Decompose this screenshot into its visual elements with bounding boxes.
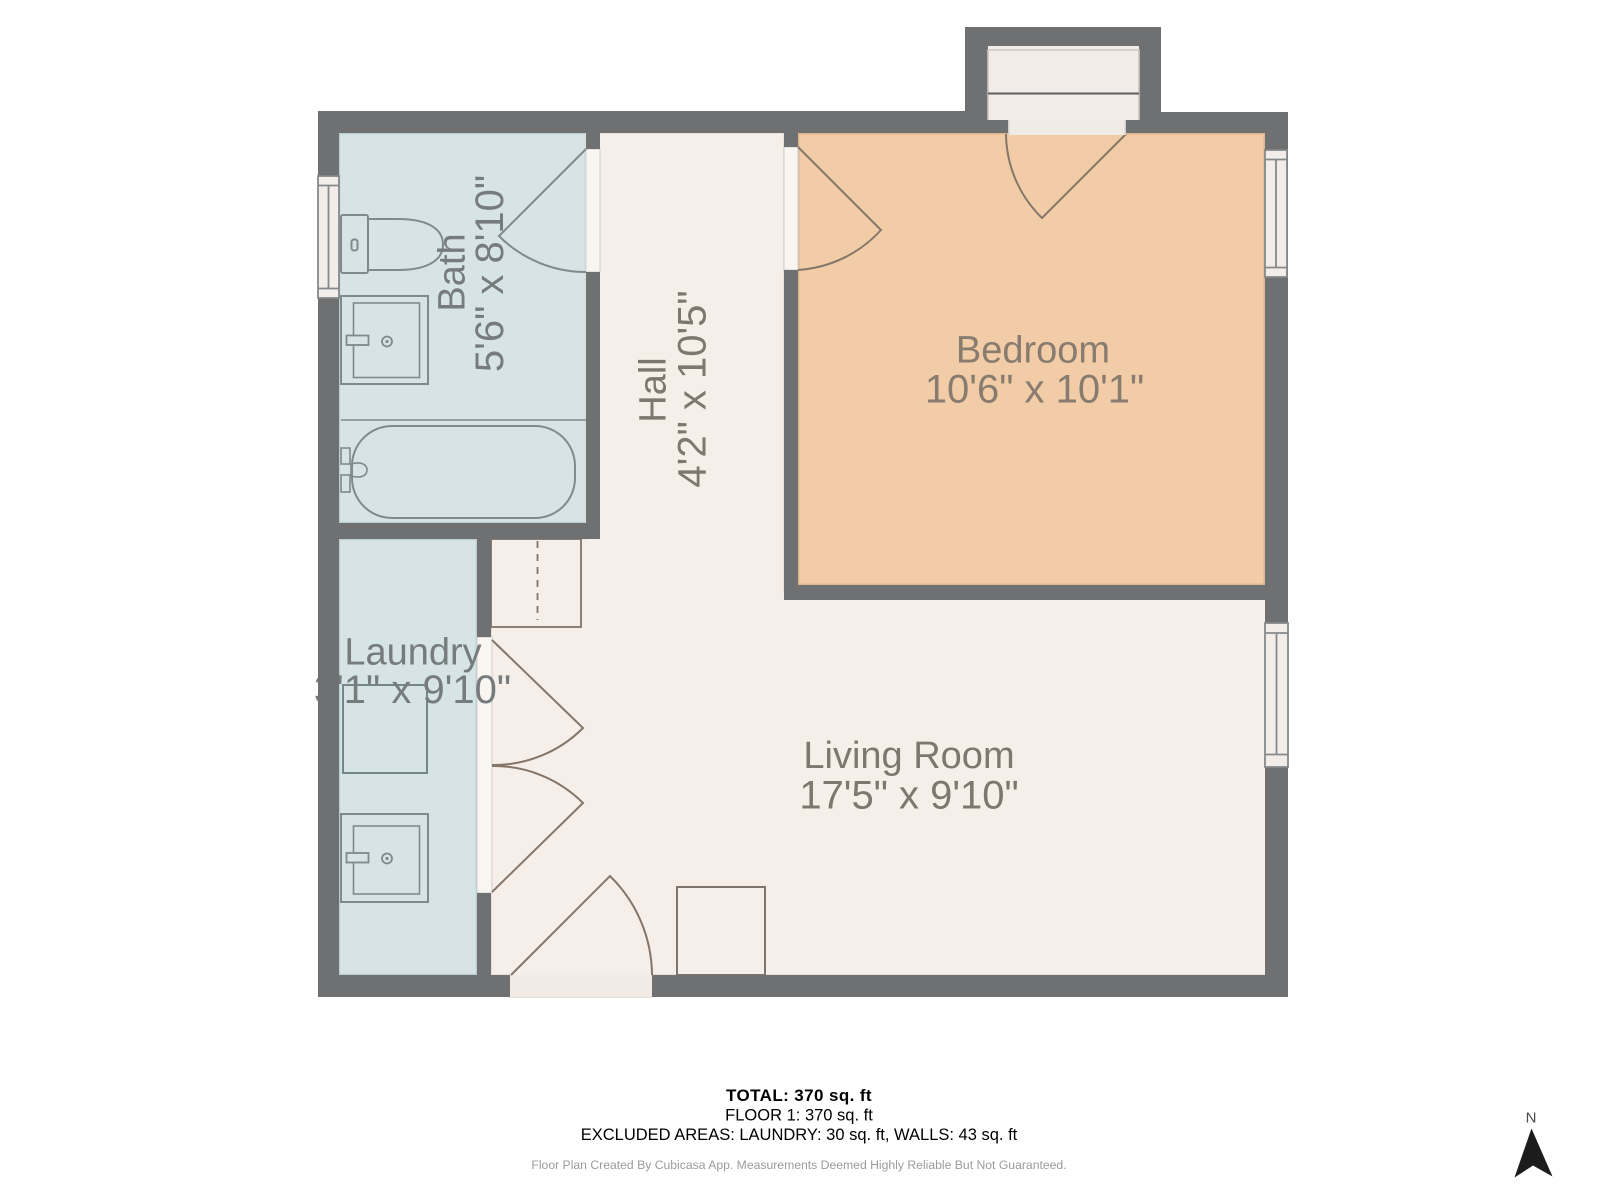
svg-text:10'6" x 10'1": 10'6" x 10'1" [925, 368, 1144, 412]
svg-text:Floor Plan Created By Cubicasa: Floor Plan Created By Cubicasa App. Meas… [531, 1158, 1066, 1172]
svg-text:Bedroom: Bedroom [956, 329, 1110, 371]
svg-text:Hall: Hall [633, 357, 675, 422]
svg-text:N: N [1526, 1110, 1537, 1127]
svg-text:Living Room: Living Room [803, 735, 1014, 777]
svg-text:3'1" x 9'10": 3'1" x 9'10" [314, 668, 511, 712]
svg-text:FLOOR 1: 370 sq. ft: FLOOR 1: 370 sq. ft [725, 1107, 873, 1125]
svg-text:TOTAL: 370 sq. ft: TOTAL: 370 sq. ft [726, 1086, 872, 1105]
svg-text:4'2" x 10'5": 4'2" x 10'5" [671, 290, 715, 487]
svg-text:EXCLUDED AREAS: LAUNDRY: 30 sq: EXCLUDED AREAS: LAUNDRY: 30 sq. ft, WALL… [581, 1126, 1018, 1144]
svg-text:17'5" x 9'10": 17'5" x 9'10" [799, 774, 1018, 818]
svg-text:5'6" x 8'10": 5'6" x 8'10" [468, 175, 512, 372]
